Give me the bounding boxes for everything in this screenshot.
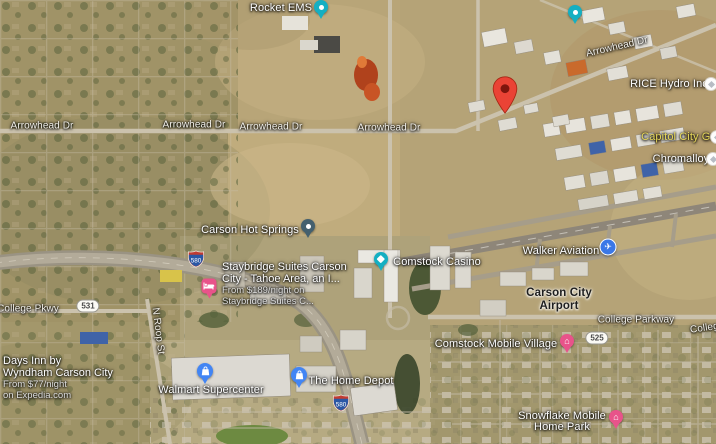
poi-label-rice-hydro[interactable]: RICE Hydro Inc (630, 78, 708, 90)
route-531-shield: 531 (76, 300, 99, 313)
poi-label-carson-hot-springs[interactable]: Carson Hot Springs (201, 224, 299, 236)
road-label-college-pkwy: College Pkwy (0, 304, 59, 315)
pin-dot-icon (319, 5, 324, 10)
days-inn-title-line1[interactable]: Days Inn by (3, 355, 113, 367)
bed-icon (204, 282, 215, 291)
shopping-bag-icon (201, 366, 210, 376)
road-label-arrowhead-dr-4: Arrowhead Dr (358, 123, 421, 134)
staybridge-price: From $189/night on (222, 286, 347, 296)
staybridge-source: Staybridge Suites C... (222, 297, 347, 307)
poi-label-snowflake-line2[interactable]: Home Park (534, 421, 590, 433)
pin-dot-icon (573, 10, 578, 15)
home-depot-pin[interactable] (291, 367, 307, 383)
road-label-arrowhead-dr-3: Arrowhead Dr (240, 122, 303, 133)
chromalloy-poi-icon[interactable] (706, 152, 716, 166)
road-label-college-parkway: College Parkway (598, 315, 675, 326)
poi-label-comstock-mobile-village[interactable]: Comstock Mobile Village (435, 338, 558, 350)
carson-hot-springs-pin[interactable] (301, 219, 315, 233)
road-label-arrowhead-dr-2: Arrowhead Dr (163, 120, 226, 131)
road-label-arrowhead-dr-1: Arrowhead Dr (11, 121, 74, 132)
poi-label-airport-line1[interactable]: Carson City (526, 287, 592, 299)
poi-label-walmart[interactable]: Walmart Supercenter (158, 384, 263, 396)
walmart-pin[interactable] (197, 363, 213, 379)
poi-label-capitol-city-gun[interactable]: Capitol City Gun (641, 131, 716, 143)
satellite-map[interactable]: Arrowhead Dr Arrowhead Dr Arrowhead Dr A… (0, 0, 716, 444)
days-inn-title-line2[interactable]: Wyndham Carson City (3, 367, 113, 379)
poi-label-airport-line2[interactable]: Airport (539, 300, 578, 312)
days-inn-source: on Expedia.com (3, 391, 113, 401)
generic-poi-icon (709, 155, 716, 162)
snowflake-mobile-home-park-pin[interactable]: ⌂ (609, 410, 623, 424)
airplane-icon: ✈ (604, 243, 612, 252)
shopping-bag-icon (295, 370, 304, 380)
generic-poi-icon (707, 80, 714, 87)
poi-label-chromalloy[interactable]: Chromalloy (653, 153, 710, 165)
rocket-ems-pin[interactable] (314, 0, 328, 14)
days-inn-price: From $77/night (3, 380, 113, 390)
interstate-580-shield-south: 580 (333, 394, 350, 412)
interstate-580-shield-west: 580 (188, 250, 205, 268)
rice-hydro-poi-icon[interactable] (704, 77, 716, 91)
staybridge-ad-block[interactable]: Staybridge Suites Carson City - Tahoe Ar… (222, 261, 347, 307)
days-inn-ad-block[interactable]: Days Inn by Wyndham Carson City From $77… (3, 355, 113, 401)
northeast-teal-pin[interactable] (568, 5, 582, 19)
home-icon: ⌂ (613, 413, 618, 422)
svg-text:580: 580 (191, 257, 202, 264)
poi-label-walker-aviation[interactable]: Walker Aviation (523, 245, 600, 257)
pin-dot-icon (306, 224, 311, 229)
poi-label-rocket-ems[interactable]: Rocket EMS (250, 2, 312, 14)
poi-label-comstock-casino[interactable]: Comstock Casino (393, 256, 481, 268)
staybridge-hotel-icon[interactable] (202, 279, 217, 294)
staybridge-title-line1[interactable]: Staybridge Suites Carson (222, 261, 347, 273)
staybridge-title-line2[interactable]: City - Tahoe Area, an I... (222, 273, 347, 285)
comstock-casino-pin[interactable] (374, 252, 388, 266)
poi-label-home-depot[interactable]: The Home Depot (308, 375, 393, 387)
svg-text:580: 580 (336, 401, 347, 408)
home-icon: ⌂ (564, 337, 569, 346)
walker-aviation-icon[interactable]: ✈ (600, 239, 617, 256)
red-map-pin[interactable] (492, 76, 518, 114)
dice-icon (377, 255, 385, 263)
comstock-mobile-village-pin[interactable]: ⌂ (560, 334, 574, 348)
route-525-shield: 525 (585, 332, 608, 345)
